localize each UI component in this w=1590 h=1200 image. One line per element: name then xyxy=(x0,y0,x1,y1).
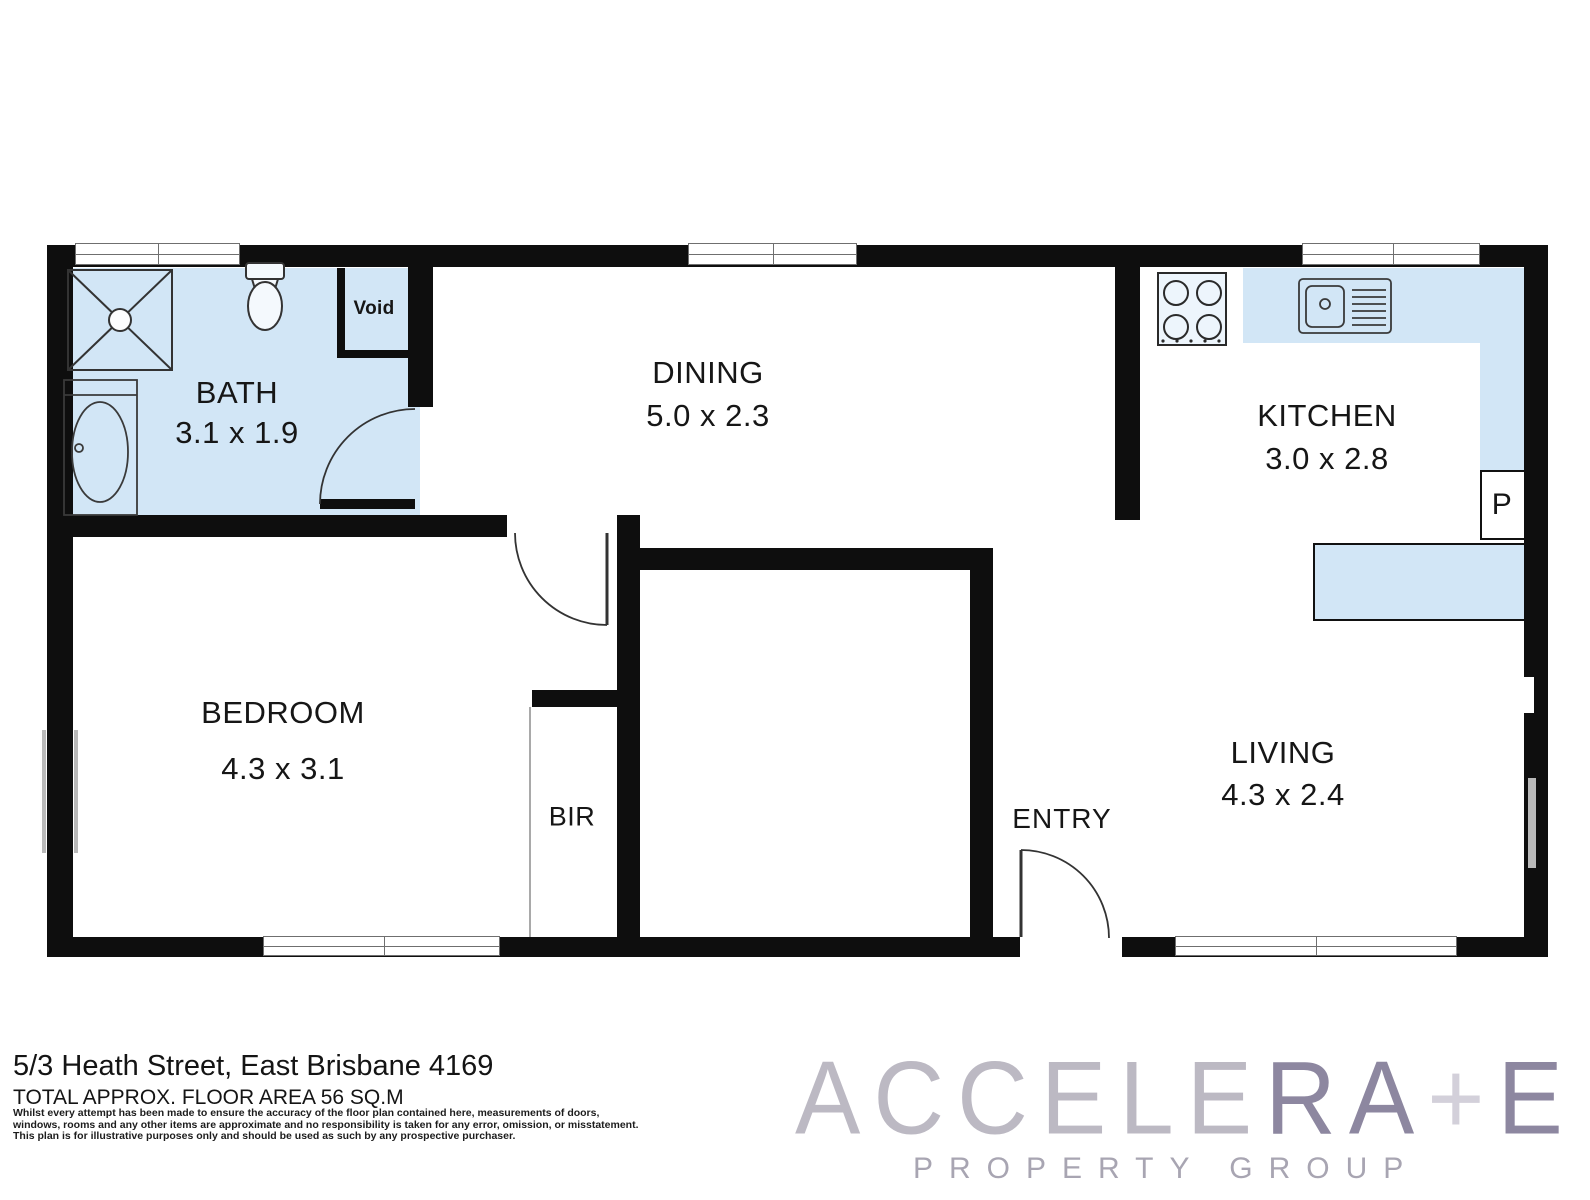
address-text: 5/3 Heath Street, East Brisbane 4169 xyxy=(13,1050,493,1083)
logo-text-accent2: E xyxy=(1498,1039,1576,1156)
void-label: Void xyxy=(354,298,395,320)
kitchen-label: KITCHEN xyxy=(1257,398,1397,434)
disclaimer-line: Whilst every attempt has been made to en… xyxy=(13,1108,639,1120)
bedroom-door-swing-icon xyxy=(515,533,607,625)
kitchen-sink-icon xyxy=(1299,279,1391,333)
agency-logo: ACCELERA+E xyxy=(795,1038,1576,1158)
living-dims: 4.3 x 2.4 xyxy=(1221,777,1344,813)
floorplan-image: BATH 3.1 x 1.9 Void DINING 5.0 x 2.3 KIT… xyxy=(0,0,1590,1200)
pantry-label: P xyxy=(1492,488,1513,522)
shower-icon xyxy=(68,270,172,370)
agency-tagline: PROPERTY GROUP xyxy=(913,1152,1419,1186)
dining-dims: 5.0 x 2.3 xyxy=(646,398,769,434)
kitchen-dims: 3.0 x 2.8 xyxy=(1265,441,1388,477)
bathtub-icon xyxy=(64,380,137,515)
bedroom-dims: 4.3 x 3.1 xyxy=(221,751,344,787)
bath-dims: 3.1 x 1.9 xyxy=(175,415,298,451)
disclaimer-text: Whilst every attempt has been made to en… xyxy=(13,1108,639,1143)
living-label: LIVING xyxy=(1231,735,1336,771)
bath-label: BATH xyxy=(196,375,278,411)
bir-label: BIR xyxy=(549,802,596,833)
logo-text-accent: RA xyxy=(1265,1039,1427,1156)
disclaimer-line: This plan is for illustrative purposes o… xyxy=(13,1131,639,1143)
logo-text-thin: ACCELE xyxy=(795,1039,1265,1156)
dining-label: DINING xyxy=(652,355,764,391)
logo-plus-icon: + xyxy=(1427,1039,1497,1156)
bath-door-swing-icon xyxy=(320,409,415,504)
fixtures-layer xyxy=(0,0,1590,1200)
cooktop-burners-icon xyxy=(1161,281,1221,343)
entry-label: ENTRY xyxy=(1012,803,1111,835)
bedroom-label: BEDROOM xyxy=(201,695,365,731)
toilet-icon xyxy=(246,263,284,330)
entry-door-swing-icon xyxy=(1021,850,1109,938)
